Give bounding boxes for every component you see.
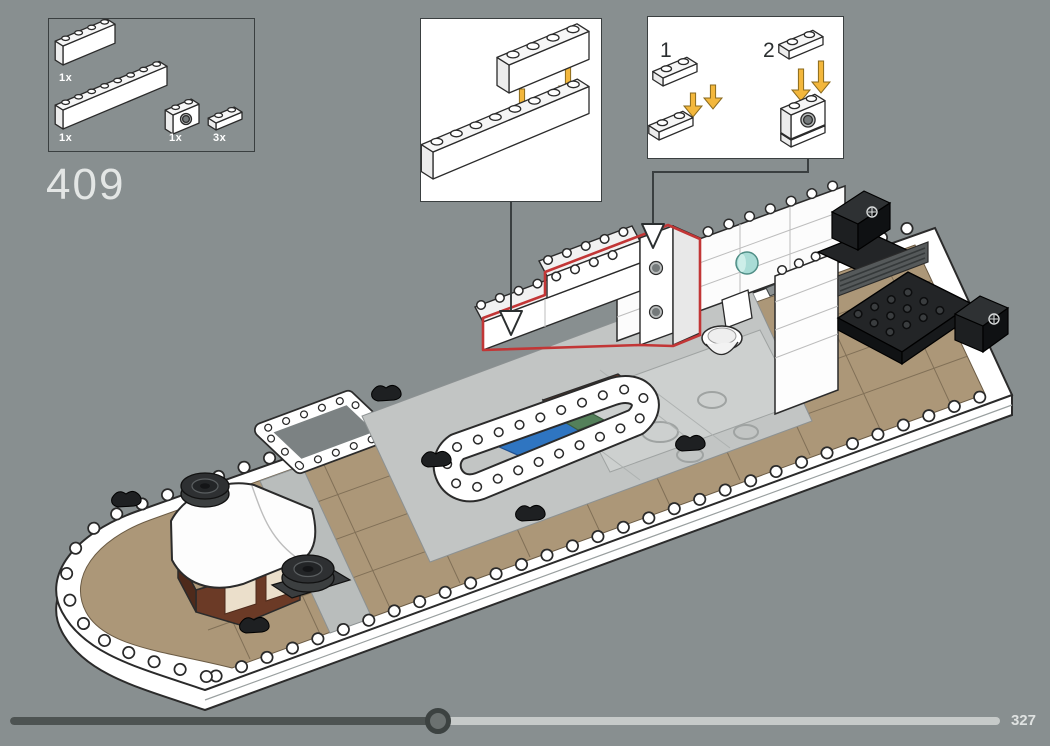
plate-1x2-white-icon (653, 57, 697, 86)
part-qty-label: 1x (169, 132, 182, 144)
progress-fill (10, 717, 438, 725)
plate-1x2-white-icon (208, 107, 242, 130)
plate-1x2-white-icon (779, 30, 823, 59)
progress-bar: 327 (0, 704, 1050, 740)
bathroom-right-wall (775, 250, 838, 414)
progress-track[interactable] (10, 717, 1000, 725)
page-number: 327 (1011, 712, 1036, 729)
progress-handle[interactable] (425, 708, 451, 734)
brick-1x8-white-icon (421, 79, 589, 179)
brick-1x4-white-icon (55, 19, 115, 65)
part-qty-label: 1x (59, 72, 72, 84)
porthole-teal-piece (736, 252, 758, 274)
step-number: 409 (46, 160, 125, 210)
part-qty-label: 3x (213, 132, 226, 144)
assembly-arrow-icon (704, 85, 722, 109)
parts-box: 1x 1x 1x 3x (48, 18, 255, 152)
part-qty-label: 1x (59, 132, 72, 144)
instruction-page: 1x 1x 1x 3x 409 1 2 327 (0, 0, 1050, 746)
plate-1x2-white-icon (649, 111, 693, 140)
technic-brick-1x2-hole-white-icon (165, 99, 199, 134)
callout-substeps: 1 2 (647, 16, 844, 159)
assembly-arrow-icon (812, 61, 830, 93)
callout-stack-detail (420, 18, 602, 202)
capstan (181, 473, 229, 507)
technic-column (640, 226, 700, 345)
